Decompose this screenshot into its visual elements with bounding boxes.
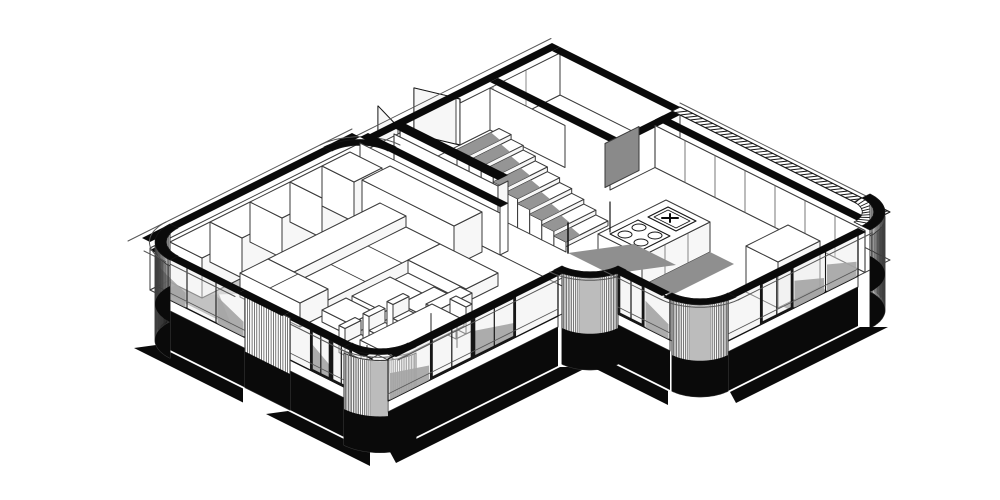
corner-rib-kitchen [660,293,740,397]
axonometric-floor-plan [0,0,1000,500]
floor-plan-figure: Black-and-white axonometric cutaway draw… [0,0,1000,500]
